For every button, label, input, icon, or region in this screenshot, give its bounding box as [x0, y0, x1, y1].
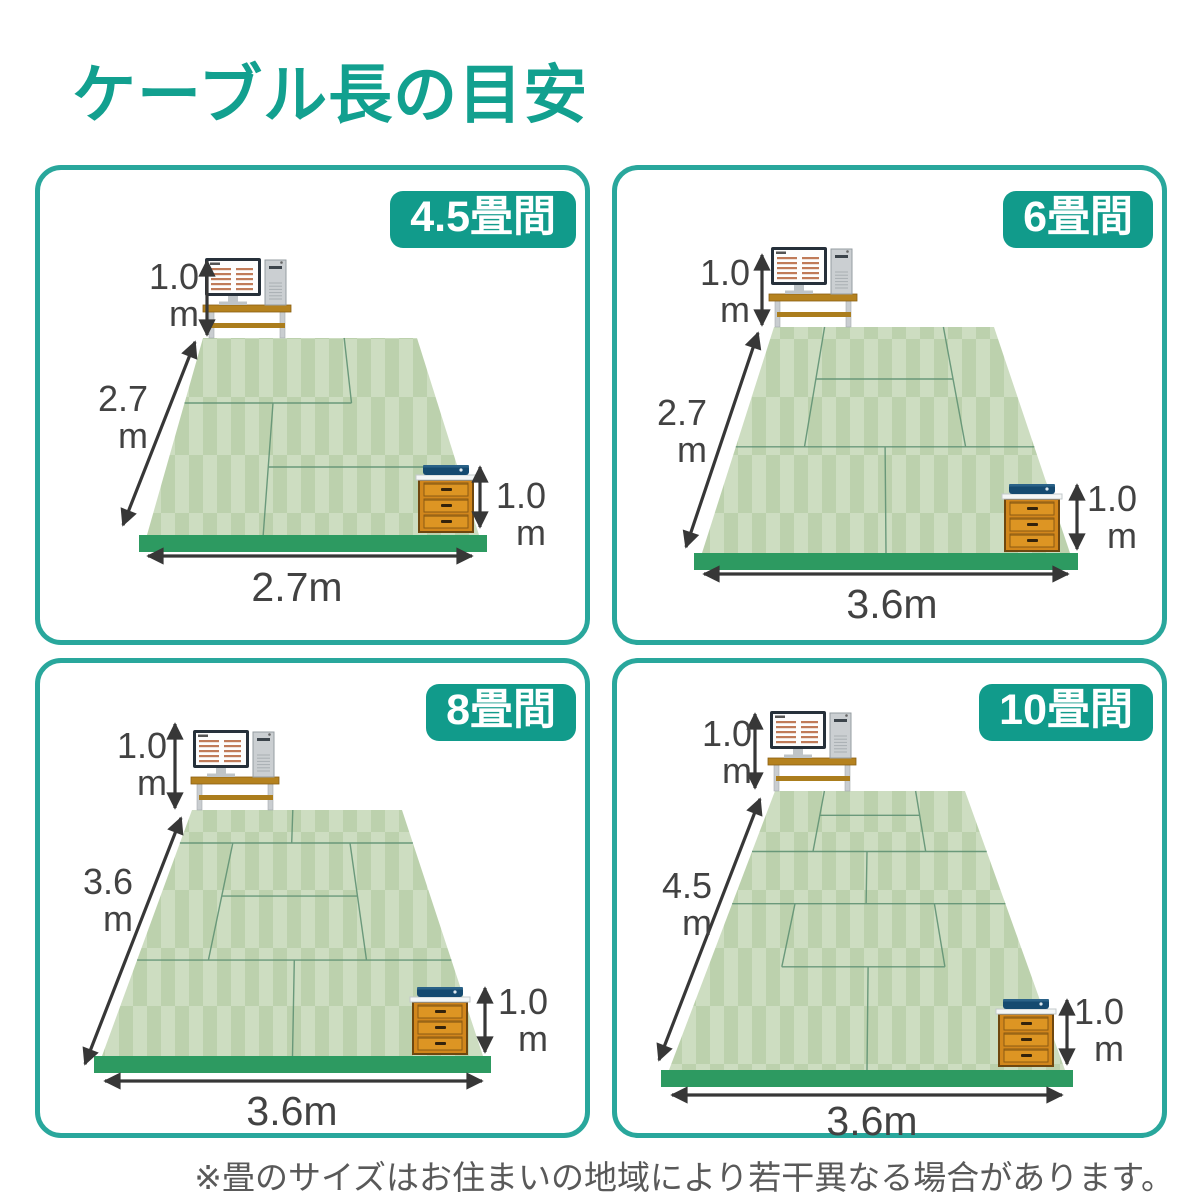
cabinet-height-label: 1.0 m	[1072, 481, 1152, 554]
room-depth-unit: m	[637, 905, 737, 942]
footnote: ※畳のサイズはお住まいの地域により若干異なる場合があります。	[194, 1151, 1174, 1199]
cabinet-height-label: 1.0 m	[481, 478, 561, 551]
cabinet-height-label: 1.0 m	[483, 984, 563, 1057]
cabinet-height-value: 1.0	[496, 475, 546, 516]
cabinet-height-unit: m	[1059, 1031, 1139, 1068]
room-depth-value: 4.5	[662, 865, 712, 906]
desk-height-value: 1.0	[149, 256, 199, 297]
room-panel-8jo: 8畳間 1.0 m 3.6 m 1.0 m 3.6m	[35, 658, 590, 1138]
cabinet-height-unit: m	[1072, 518, 1152, 555]
cabinet-height-value: 1.0	[1074, 991, 1124, 1032]
room-panel-4-5jo: 4.5畳間 1.0 m 2.7 m 1.0 m 2.7m	[35, 165, 590, 645]
page-title: ケーブル長の目安	[72, 44, 588, 136]
room-panel-10jo: 10畳間 1.0 m 4.5 m 1.0 m 3.6m	[612, 658, 1167, 1138]
room-depth-label: 3.6 m	[58, 864, 158, 937]
desk-height-value: 1.0	[702, 713, 752, 754]
desk-height-label: 1.0 m	[690, 255, 760, 328]
desk-height-unit: m	[690, 292, 760, 329]
room-size-badge: 10畳間	[979, 684, 1153, 741]
cabinet-height-unit: m	[483, 1021, 563, 1058]
room-depth-value: 2.7	[98, 378, 148, 419]
cabinet-height-value: 1.0	[498, 981, 548, 1022]
desk-height-unit: m	[107, 765, 177, 802]
desk-height-unit: m	[694, 753, 760, 790]
desk-height-value: 1.0	[700, 252, 750, 293]
room-width-label: 3.6m	[772, 581, 1012, 628]
room-width-label: 3.6m	[752, 1098, 992, 1145]
room-size-badge: 6畳間	[1003, 191, 1153, 248]
room-size-badge: 8畳間	[426, 684, 576, 741]
desk-height-label: 1.0 m	[139, 259, 209, 332]
room-depth-label: 2.7 m	[632, 395, 732, 468]
room-width-label: 2.7m	[177, 564, 417, 611]
room-depth-label: 2.7 m	[73, 381, 173, 454]
room-depth-value: 3.6	[83, 861, 133, 902]
room-depth-unit: m	[73, 418, 173, 455]
room-panel-6jo: 6畳間 1.0 m 2.7 m 1.0 m 3.6m	[612, 165, 1167, 645]
desk-height-label: 1.0 m	[107, 728, 177, 801]
desk-height-value: 1.0	[117, 725, 167, 766]
room-width-label: 3.6m	[172, 1088, 412, 1135]
cabinet-height-label: 1.0 m	[1059, 994, 1139, 1067]
room-depth-label: 4.5 m	[637, 868, 737, 941]
room-size-badge: 4.5畳間	[390, 191, 576, 248]
room-depth-unit: m	[58, 901, 158, 938]
desk-height-unit: m	[139, 296, 209, 333]
room-depth-value: 2.7	[657, 392, 707, 433]
cabinet-height-value: 1.0	[1087, 478, 1137, 519]
room-depth-unit: m	[632, 432, 732, 469]
cabinet-height-unit: m	[481, 515, 561, 552]
desk-height-label: 1.0 m	[694, 716, 760, 789]
